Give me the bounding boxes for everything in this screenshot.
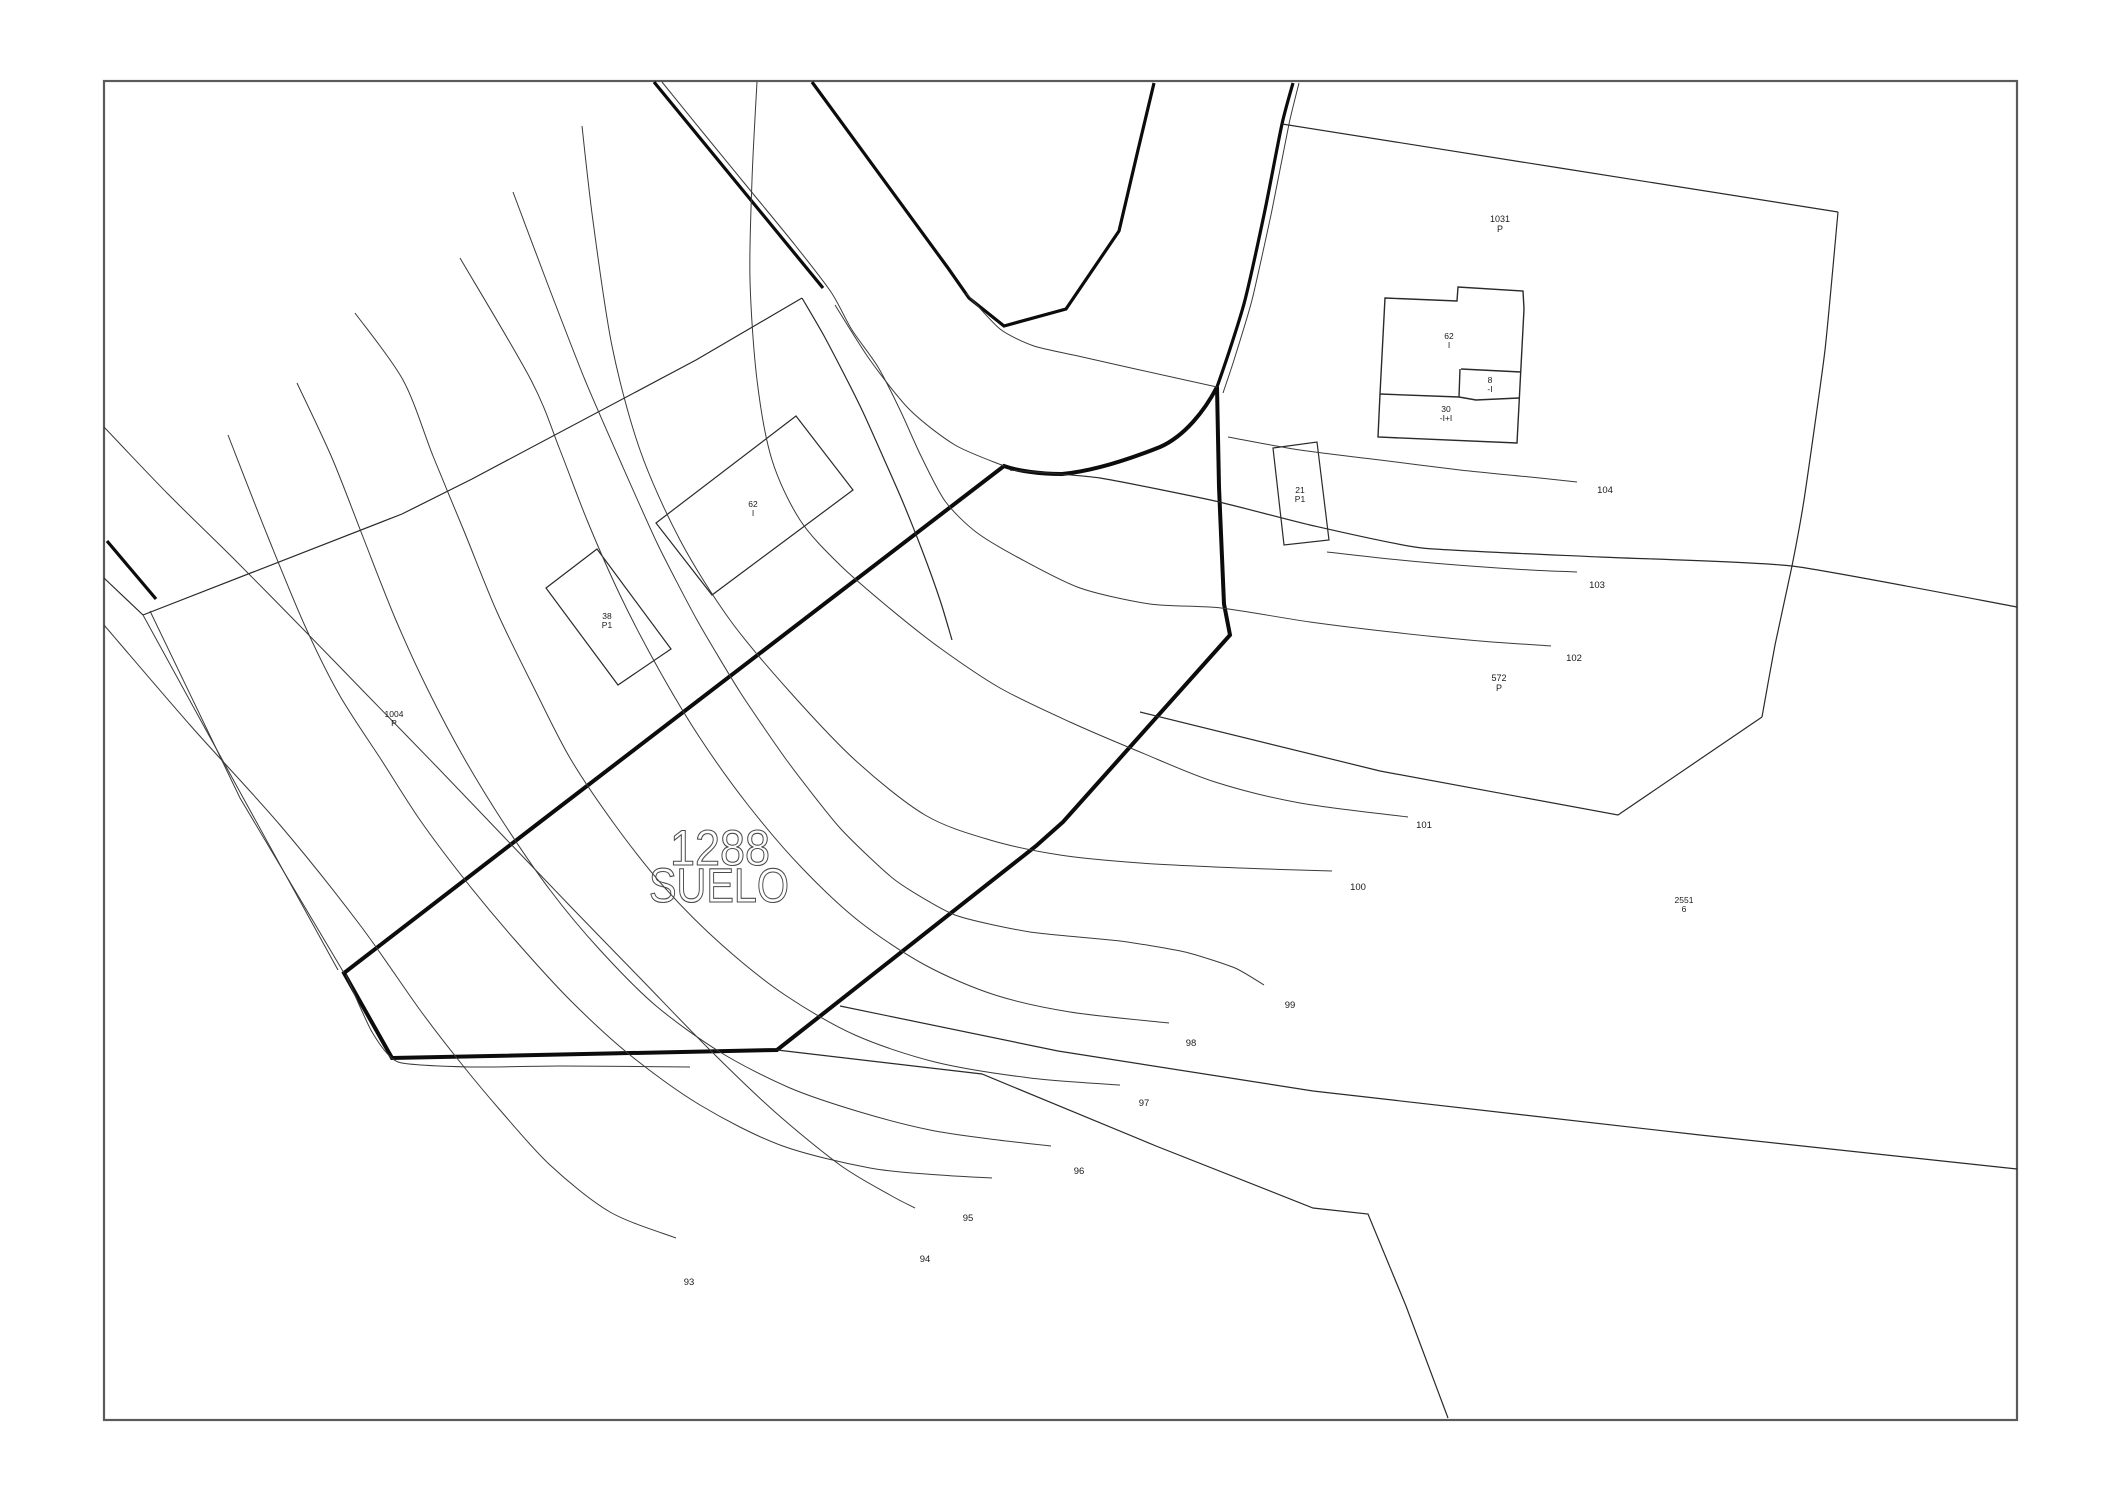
svg-text:99: 99 xyxy=(1285,1000,1296,1011)
svg-text:98: 98 xyxy=(1186,1038,1197,1049)
svg-text:100: 100 xyxy=(1350,882,1366,893)
svg-text:P: P xyxy=(391,718,397,728)
svg-text:1031: 1031 xyxy=(1490,214,1510,224)
svg-text:P: P xyxy=(1497,224,1503,234)
svg-text:I: I xyxy=(752,508,754,518)
svg-text:SUELO: SUELO xyxy=(649,860,789,913)
svg-text:94: 94 xyxy=(920,1254,931,1265)
svg-text:96: 96 xyxy=(1074,1166,1085,1177)
svg-text:93: 93 xyxy=(684,1277,695,1288)
svg-text:97: 97 xyxy=(1139,1098,1150,1109)
svg-text:95: 95 xyxy=(963,1213,974,1224)
svg-text:-I+I: -I+I xyxy=(1440,413,1453,423)
svg-text:572: 572 xyxy=(1491,673,1506,683)
svg-text:P: P xyxy=(1496,683,1502,693)
svg-text:6: 6 xyxy=(1682,904,1687,914)
svg-text:I: I xyxy=(1448,340,1450,350)
svg-text:101: 101 xyxy=(1416,820,1432,831)
svg-text:104: 104 xyxy=(1597,485,1613,496)
svg-text:P1: P1 xyxy=(602,620,613,630)
svg-text:-I: -I xyxy=(1487,384,1492,394)
svg-text:102: 102 xyxy=(1566,653,1582,664)
svg-text:P1: P1 xyxy=(1295,494,1306,504)
svg-text:103: 103 xyxy=(1589,580,1605,591)
